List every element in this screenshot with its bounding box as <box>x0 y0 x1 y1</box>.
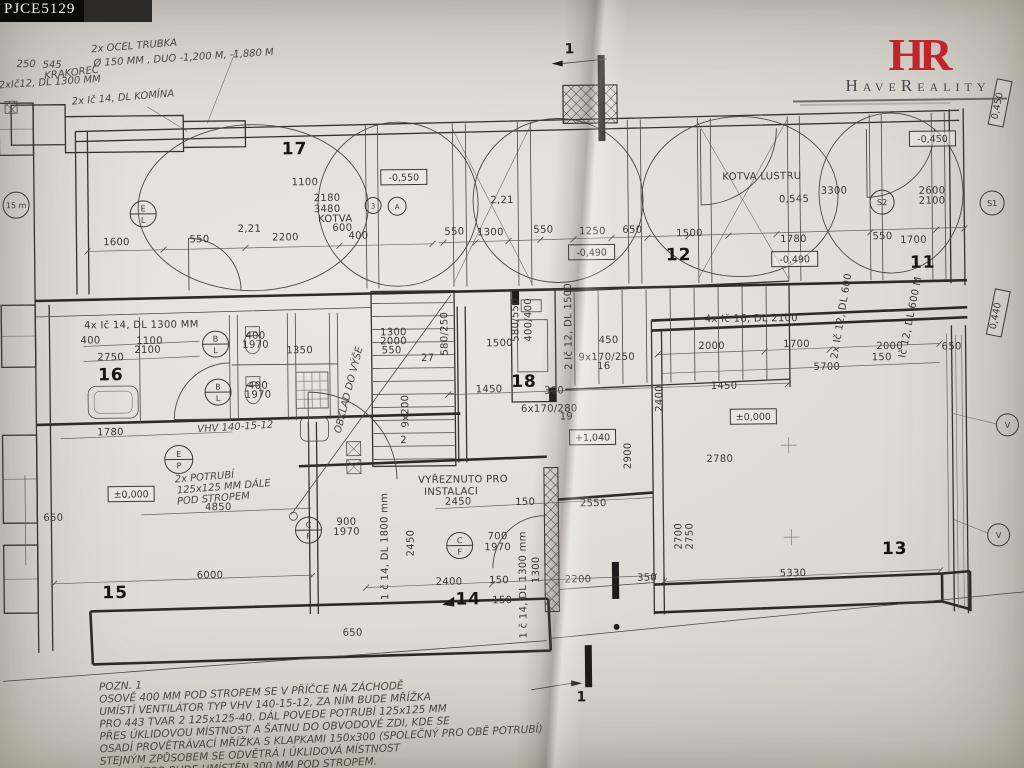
dim-label: 1500 <box>676 228 703 239</box>
hand-label: 2x Ič 14, DL KOMÍNA <box>71 86 175 107</box>
dim-label: 1500 <box>486 338 513 349</box>
marker-label: S1 <box>987 199 997 208</box>
dim-label: 600 <box>332 223 352 234</box>
dim-label: 1250 <box>579 226 606 237</box>
dim-label: 2200 <box>272 232 299 243</box>
dim-label: 150 <box>872 352 892 363</box>
dim-label: 1100 <box>291 177 318 188</box>
dim-label: 0,545 <box>779 194 809 205</box>
dim-label: 400/400 <box>523 298 534 342</box>
dim-label: 1970 <box>245 390 272 401</box>
dim-label: 1300 <box>477 227 504 238</box>
dim-label: 2200 <box>565 574 592 585</box>
dim-label: 1970 <box>484 542 511 553</box>
dim-label: 2750 <box>684 523 695 550</box>
room-number: 11 <box>910 253 936 273</box>
dim-label: 650 <box>343 628 363 639</box>
dim-label: 2,21 <box>238 224 262 235</box>
dim-label: 1700 <box>783 339 810 350</box>
floorplan-drawing: 2x OCEL TRUBKAØ 150 MM , DUO -1,200 M, -… <box>0 0 1024 768</box>
dim-label: 150 <box>515 497 535 508</box>
level-badge-value: -0,490 <box>576 247 607 258</box>
marker-bottom-label: F <box>306 532 311 541</box>
dim-label: 2780 <box>706 454 733 465</box>
dim-label: 2700 <box>673 523 684 550</box>
dim-label: 1450 <box>711 381 738 392</box>
hand-label: OBKLAD DO VÝŠE <box>331 345 366 435</box>
dim-label: 650 <box>942 341 962 352</box>
dim-label: 1700 <box>900 235 927 246</box>
room-number: 14 <box>455 589 481 609</box>
room-number: 16 <box>98 365 124 385</box>
hand-label: 250 <box>17 59 36 70</box>
dim-label: 550 <box>382 345 402 356</box>
dim-label: 300 <box>544 385 564 396</box>
dim-label: 4850 <box>205 502 232 513</box>
blueprint-photo: 2x OCEL TRUBKAØ 150 MM , DUO -1,200 M, -… <box>0 0 1024 768</box>
room-number: 15 <box>102 583 128 603</box>
room-number: 13 <box>882 539 908 559</box>
dim-label: 2100 <box>919 195 946 206</box>
dim-label: 1780 <box>97 427 124 438</box>
dim-label: 2x Ič 12, DL 600 <box>828 272 854 359</box>
dim-label: 2400 <box>436 577 463 588</box>
dim-label: KOTVA LUSTRU <box>722 171 801 183</box>
dim-label: 2 <box>400 435 407 446</box>
level-badge-value: ±0,000 <box>113 489 148 500</box>
dim-label: 1 č 14, DL 1800 mm <box>378 493 391 600</box>
dim-label: 700 <box>488 531 508 542</box>
dim-label: 1600 <box>103 237 130 248</box>
marker-top-label: C <box>306 521 312 530</box>
marker-top-label: B <box>213 335 219 344</box>
dim-label: 1300 <box>531 556 542 583</box>
sec-label: 1 <box>576 689 586 705</box>
level-badge-value: ±0,000 <box>736 412 771 423</box>
dim-label: 550 <box>533 225 553 236</box>
dim-label: 2750 <box>97 352 124 363</box>
dim-label: 150 <box>492 595 512 606</box>
dim-label: 2450 <box>406 530 417 557</box>
marker-label: 15 m <box>6 201 27 210</box>
dim-label: 2180 <box>314 193 341 204</box>
marker-top-label: B <box>215 383 221 392</box>
dim-label: 2100 <box>134 345 161 356</box>
dim-label: 450 <box>598 335 618 346</box>
dim-label: 19 <box>560 411 573 422</box>
level-badge-value: -0,490 <box>779 254 810 265</box>
hand-label: 2x OCEL TRUBKA <box>91 37 178 55</box>
dim-label: 1970 <box>333 527 360 538</box>
dim-label: 150 <box>489 575 509 586</box>
dim-label: 1970 <box>242 340 269 351</box>
dim-label: 400 <box>80 335 100 346</box>
dim-label: 2 Ič 12, DL 1500 <box>562 283 575 370</box>
dim-label: 2400 <box>654 385 665 412</box>
level-badge-value: -0,550 <box>388 172 419 183</box>
dimension-lines <box>0 225 1024 682</box>
dim-label: 1 č 14, DL 1300 mm <box>517 531 530 638</box>
marker-label: S2 <box>877 198 887 207</box>
marker-label: V <box>1005 421 1011 430</box>
marker-bottom-label: P <box>176 461 181 470</box>
sec-label: 1 <box>565 41 575 57</box>
marker-label: V <box>996 531 1002 540</box>
vault-arcs <box>137 112 964 292</box>
dim-label: 1350 <box>286 345 313 356</box>
marker-label: A <box>395 203 400 211</box>
logo-monogram: HR <box>816 32 1020 78</box>
dim-label: 2000 <box>876 341 903 352</box>
dim-label: 550 <box>189 234 209 245</box>
level-badge-value: +1,040 <box>575 432 610 443</box>
dim-label: 4x Ič 16, DL 2100 <box>705 312 798 325</box>
dim-label: VYŘEZNUTO PRO <box>418 472 508 486</box>
dim-label: 2000 <box>698 341 725 352</box>
dim-label: 2450 <box>445 496 472 507</box>
dim-label: 2900 <box>623 442 634 469</box>
haverealty-logo: HR HaveReality <box>816 32 1020 96</box>
marker-bottom-label: L <box>213 346 218 355</box>
hand-label: VHV 140-15-12 <box>197 420 274 436</box>
plan-code-tag: PJCE5129 <box>0 0 84 22</box>
marker-bottom-label: F <box>457 548 462 557</box>
dim-label: 9x200 <box>400 395 411 428</box>
marker-top-label: E <box>176 450 181 459</box>
logo-name: HaveReality <box>816 76 1020 96</box>
dim-label: 1450 <box>476 384 503 395</box>
marker-top-label: C <box>457 536 463 545</box>
dim-label: 1780 <box>780 234 807 245</box>
dim-label: 27 <box>421 353 434 364</box>
level-badge-value: -0,450 <box>917 134 948 145</box>
dim-label: 5330 <box>780 568 807 579</box>
room-number: 18 <box>511 372 537 392</box>
dim-label: 550 <box>444 226 464 237</box>
dim-label: 2550 <box>580 498 607 509</box>
dim-label: 16 <box>597 361 610 372</box>
dim-label: 3300 <box>821 185 848 196</box>
room-number: 17 <box>282 139 308 159</box>
dim-label: 650 <box>43 513 63 524</box>
dim-label: 5700 <box>813 362 840 373</box>
dim-label: 550 <box>872 231 892 242</box>
marker-label: 3 <box>371 202 376 210</box>
dim-label: 580/250 <box>439 312 450 356</box>
room-number: 12 <box>666 245 692 265</box>
dim-label: 650 <box>622 225 642 236</box>
dim-label: 2,21 <box>490 195 514 206</box>
marker-bottom-label: L <box>216 394 221 403</box>
marker-top-label: E <box>141 204 146 213</box>
dim-label: 350 <box>637 572 657 583</box>
dim-label: 4x Ič 14, DL 1300 MM <box>84 318 199 331</box>
dim-label: 580/550 <box>510 298 521 342</box>
dim-label: 6000 <box>197 570 224 581</box>
marker-bottom-label: L <box>141 216 146 225</box>
